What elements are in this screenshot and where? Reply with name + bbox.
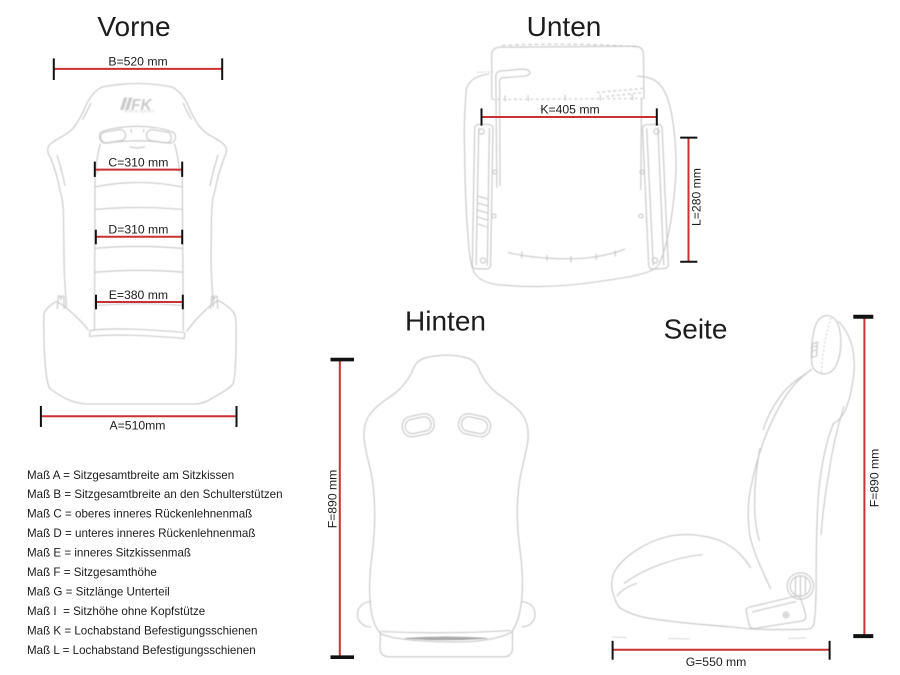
svg-text:motorsport: motorsport (124, 109, 155, 115)
svg-text:L=280 mm: L=280 mm (690, 168, 704, 226)
svg-text:E=380 mm: E=380 mm (109, 288, 168, 302)
svg-text:Maß K = Lochabstand Befestigun: Maß K = Lochabstand Befestigungsschienen (27, 624, 257, 637)
svg-text:B=520 mm: B=520 mm (108, 55, 167, 69)
svg-text:Hinten: Hinten (405, 306, 486, 337)
svg-text:D=310 mm: D=310 mm (108, 223, 168, 237)
svg-text:F=890 mm: F=890 mm (326, 470, 340, 529)
svg-text:Vorne: Vorne (97, 11, 170, 42)
svg-text:Maß I = Sitzhöhe ohne Kopfstü: Maß I = Sitzhöhe ohne Kopfstütze (27, 605, 205, 618)
svg-text:Maß G = Sitzlänge Unterteil: Maß G = Sitzlänge Unterteil (27, 586, 170, 599)
svg-text:A=510mm: A=510mm (110, 419, 166, 433)
svg-text:C=310 mm: C=310 mm (108, 155, 168, 169)
svg-text:Maß D = unteres inneres Rücken: Maß D = unteres inneres Rückenlehnenmaß (27, 527, 255, 540)
svg-text:Unten: Unten (527, 11, 602, 42)
svg-text:F=890 mm: F=890 mm (868, 449, 882, 508)
svg-text:Maß F = Sitzgesamthöhe: Maß F = Sitzgesamthöhe (27, 566, 157, 579)
svg-text:K=405 mm: K=405 mm (540, 102, 599, 116)
svg-text:Maß E = inneres Sitzkissenmaß: Maß E = inneres Sitzkissenmaß (27, 547, 191, 560)
svg-text:Maß L = Lochabstand Befestigun: Maß L = Lochabstand Befestigungsschienen (27, 644, 256, 657)
svg-text:Maß C = oberes inneres Rückenl: Maß C = oberes inneres Rückenlehnenmaß (27, 508, 252, 521)
svg-text:Maß B = Sitzgesamtbreite an de: Maß B = Sitzgesamtbreite an den Schulter… (27, 488, 283, 501)
svg-text:G=550 mm: G=550 mm (686, 655, 747, 669)
svg-text:Maß A = Sitzgesamtbreite am Si: Maß A = Sitzgesamtbreite am Sitzkissen (27, 469, 234, 482)
svg-text:Seite: Seite (664, 314, 728, 345)
